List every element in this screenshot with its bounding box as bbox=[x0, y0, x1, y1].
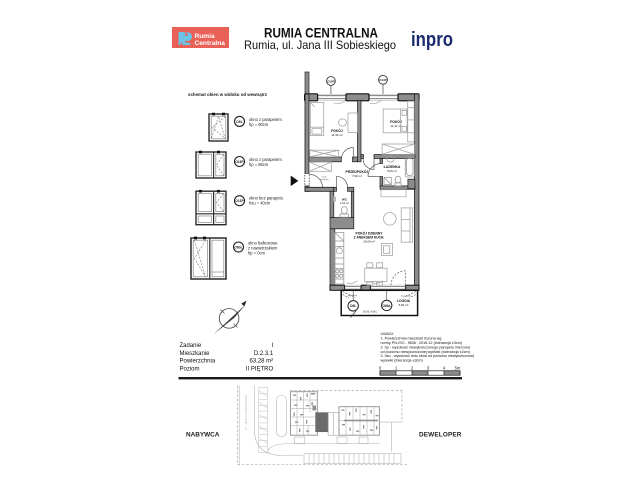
svg-text:O16P: O16P bbox=[235, 160, 244, 164]
svg-text:hp = 90cm: hp = 90cm bbox=[249, 122, 269, 127]
svg-text:Rumia: Rumia bbox=[195, 33, 215, 40]
svg-text:7,90 m²: 7,90 m² bbox=[352, 174, 362, 178]
svg-text:inpro: inpro bbox=[411, 28, 453, 51]
svg-text:normy PN-ISO - 9836 : 2015-12: normy PN-ISO - 9836 : 2015-12 (tolerancj… bbox=[381, 341, 463, 345]
svg-text:Powierzchnia: Powierzchnia bbox=[180, 359, 216, 365]
svg-text:11,40 m²: 11,40 m² bbox=[331, 133, 342, 137]
svg-text:wnękowa: wnękowa bbox=[319, 179, 329, 181]
svg-text:O6bL: O6bL bbox=[234, 246, 242, 250]
svg-text:wylewki (tolerancja ±3cm): wylewki (tolerancja ±3cm) bbox=[381, 359, 423, 363]
svg-text:26,09 m²: 26,09 m² bbox=[363, 240, 374, 244]
svg-text:O13P: O13P bbox=[235, 199, 244, 203]
svg-text:3xO6L+O6bL: 3xO6L+O6bL bbox=[363, 311, 378, 314]
svg-text:Rumia, ul. Jana III Sobieskieg: Rumia, ul. Jana III Sobieskiego bbox=[244, 38, 396, 52]
svg-text:Centralna: Centralna bbox=[195, 40, 226, 47]
svg-text:O16P: O16P bbox=[327, 79, 334, 83]
svg-text:II PIĘTRO: II PIĘTRO bbox=[246, 366, 274, 372]
svg-text:UWAGI:: UWAGI: bbox=[381, 332, 394, 336]
svg-text:od poziomu niewykończonej wyle: od poziomu niewykończonej wylewki (toler… bbox=[381, 350, 470, 354]
svg-text:5m: 5m bbox=[455, 365, 461, 370]
svg-text:3. hsu - wysokość dołu okna od: 3. hsu - wysokość dołu okna od poziomu n… bbox=[381, 354, 475, 358]
svg-text:hp=90cm: hp=90cm bbox=[348, 295, 357, 297]
svg-text:1. Powierzchnia mieszkań liczo: 1. Powierzchnia mieszkań liczona wg bbox=[381, 337, 442, 341]
svg-text:1,91 m²: 1,91 m² bbox=[340, 201, 349, 205]
svg-text:O6L: O6L bbox=[236, 120, 244, 124]
svg-text:6,84 m²: 6,84 m² bbox=[399, 303, 409, 307]
svg-text:63,28 m²: 63,28 m² bbox=[250, 359, 274, 365]
svg-text:11,47 m²: 11,47 m² bbox=[390, 124, 401, 128]
svg-text:hsu = 40cm: hsu = 40cm bbox=[249, 201, 271, 206]
svg-text:O13P: O13P bbox=[379, 78, 386, 82]
svg-text:D.2.3.1: D.2.3.1 bbox=[254, 351, 274, 357]
svg-text:NABYWCA: NABYWCA bbox=[186, 432, 220, 439]
svg-text:O6bL: O6bL bbox=[382, 304, 391, 308]
svg-text:hp = 0cm: hp = 0cm bbox=[248, 251, 266, 256]
svg-text:Zadanie: Zadanie bbox=[180, 343, 202, 349]
svg-text:O6L: O6L bbox=[350, 304, 357, 308]
svg-text:schemat okien w widoku od wewn: schemat okien w widoku od wewnątrz bbox=[188, 92, 268, 97]
svg-text:Mieszkanie: Mieszkanie bbox=[180, 351, 211, 357]
svg-text:Poziom: Poziom bbox=[180, 366, 200, 372]
svg-text:2. hp - wysokość niewykończone: 2. hp - wysokość niewykończonego parapet… bbox=[381, 345, 472, 349]
svg-text:hp = 85cm: hp = 85cm bbox=[249, 162, 269, 167]
svg-text:UL. JANA III SOBIESKIEGO: UL. JANA III SOBIESKIEGO bbox=[244, 394, 248, 430]
svg-text:5,05 m²: 5,05 m² bbox=[387, 169, 397, 173]
svg-text:DEWELOPER: DEWELOPER bbox=[419, 432, 462, 439]
svg-text:WC: WC bbox=[342, 198, 348, 202]
svg-text:hsu=40cm: hsu=40cm bbox=[401, 296, 411, 298]
